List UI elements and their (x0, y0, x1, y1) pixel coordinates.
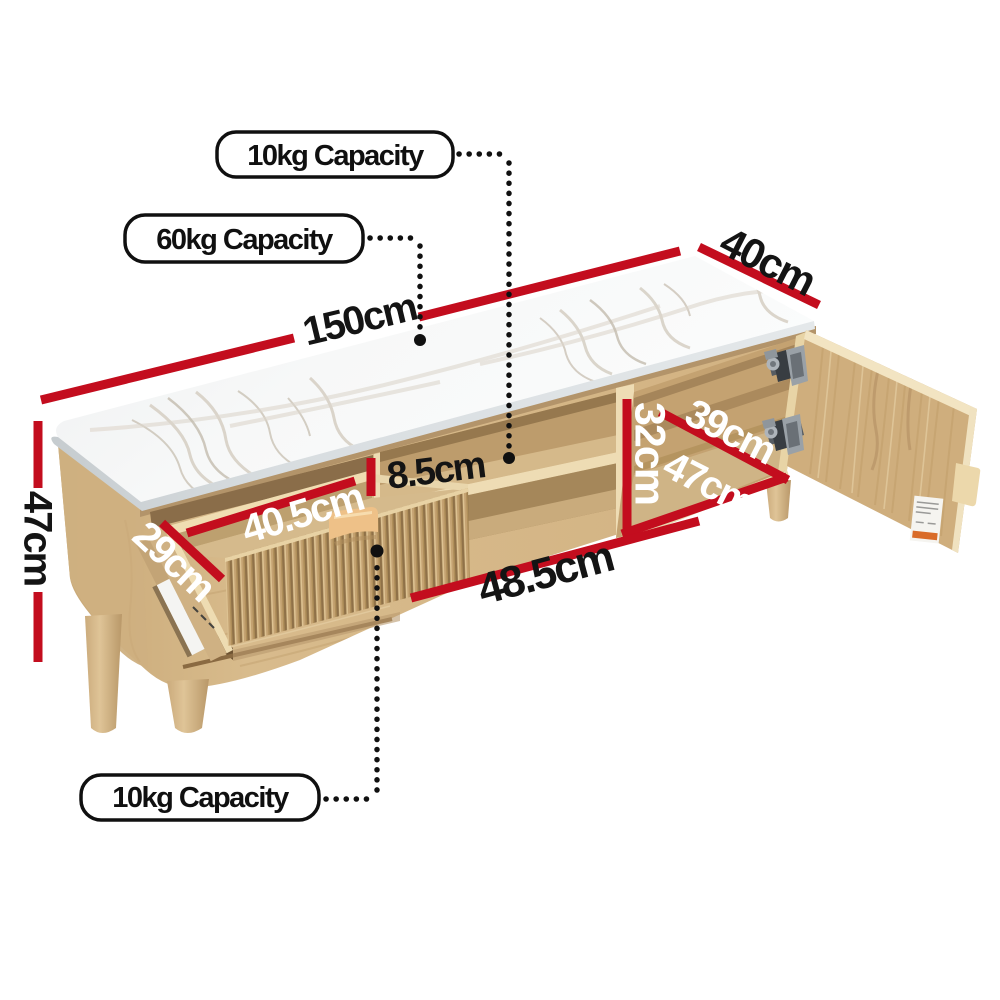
svg-text:47cm: 47cm (15, 491, 59, 586)
svg-text:60kg Capacity: 60kg Capacity (156, 224, 333, 256)
svg-text:10kg Capacity: 10kg Capacity (112, 782, 289, 814)
svg-text:10kg Capacity: 10kg Capacity (247, 140, 424, 172)
svg-text:32cm: 32cm (626, 402, 674, 504)
